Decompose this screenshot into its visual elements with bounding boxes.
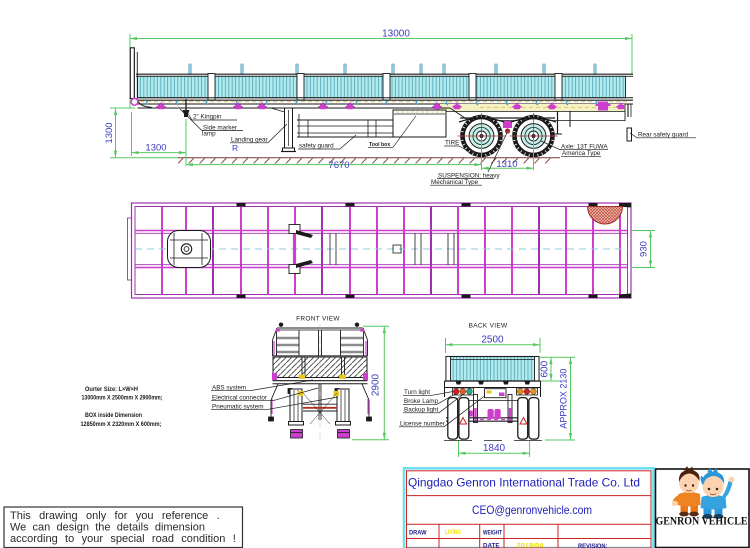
svg-text:1310: 1310 [496, 159, 517, 170]
svg-text:according to your special road: according to your special road condition… [10, 533, 236, 545]
svg-text:TIRE: TIRE [445, 140, 459, 147]
svg-text:Broke Lamp: Broke Lamp [404, 398, 438, 405]
svg-text:REVISION:: REVISION: [578, 543, 608, 548]
svg-text:13000mm X 2500mm X 2900mm;: 13000mm X 2500mm X 2900mm; [82, 395, 163, 402]
svg-text:930: 930 [639, 241, 650, 257]
svg-text:ABS system: ABS system [212, 384, 246, 391]
svg-text:2019/04: 2019/04 [517, 543, 545, 548]
svg-text:BOX inside Dimension: BOX inside Dimension [85, 412, 142, 419]
svg-text:This drawing only for you refe: This drawing only for you reference . [10, 510, 220, 522]
svg-text:GENRON VEHICLE: GENRON VEHICLE [656, 516, 748, 528]
svg-text:13000: 13000 [382, 29, 410, 40]
svg-text:FRONT VIEW: FRONT VIEW [296, 316, 340, 323]
svg-text:Qingdao Genron International T: Qingdao Genron International Trade Co. L… [408, 475, 640, 489]
svg-text:2900: 2900 [371, 373, 382, 396]
svg-text:License number: License number [400, 420, 445, 427]
svg-text:BACK VIEW: BACK VIEW [469, 323, 508, 330]
svg-text:APPROX 2130: APPROX 2130 [559, 369, 569, 429]
svg-text:lamp: lamp [202, 131, 216, 138]
svg-text:LIYING: LIYING [445, 529, 461, 536]
svg-text:Turn light: Turn light [404, 389, 430, 396]
svg-text:CEO@genronvehicle.com: CEO@genronvehicle.com [472, 503, 592, 517]
svg-text:We can design the details dime: We can design the details dimension [10, 522, 205, 534]
svg-text:7670: 7670 [328, 160, 349, 171]
svg-text:R: R [232, 143, 238, 153]
svg-text:1840: 1840 [483, 443, 506, 454]
svg-text:WEIGHT: WEIGHT [483, 530, 503, 537]
svg-text:DRAW: DRAW [409, 530, 427, 537]
svg-text:2" Kingpin: 2" Kingpin [193, 114, 222, 121]
svg-text:Pneumatic system: Pneumatic system [212, 403, 263, 410]
svg-text:1300: 1300 [104, 122, 115, 143]
svg-text:safety guard: safety guard [299, 143, 334, 150]
svg-text:Ourter Size: L×W×H: Ourter Size: L×W×H [85, 386, 138, 393]
svg-text:Electrical connector: Electrical connector [212, 394, 267, 401]
svg-text:1300: 1300 [145, 142, 166, 153]
svg-text:Backup light: Backup light [404, 406, 439, 413]
svg-text:12850mm X 2320mm X 600mm;: 12850mm X 2320mm X 600mm; [81, 421, 162, 428]
svg-text:600: 600 [540, 360, 551, 377]
svg-text:DATE: DATE [483, 543, 500, 548]
svg-text:2500: 2500 [481, 334, 504, 345]
svg-text:Rear safety guard: Rear safety guard [638, 131, 689, 138]
